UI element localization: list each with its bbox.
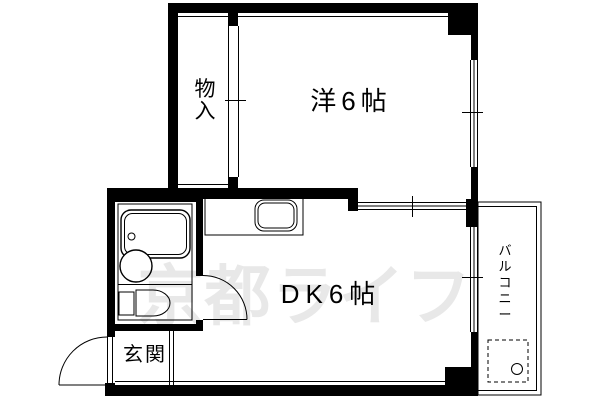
western-room-window [462, 60, 483, 167]
washing-machine-pan [488, 340, 528, 382]
wall-left-upper [168, 3, 178, 188]
balcony-label-char-4: ニ [498, 291, 511, 306]
room-partition-sliding-door [358, 196, 466, 217]
entrance-door-arc [59, 337, 107, 385]
balcony-label-char-3: コ [498, 275, 511, 290]
kitchen-sink [255, 200, 297, 231]
floorplan-drawing: 洋6帖 DK6帖 物 入 玄関 バ ル コ ニ ー 京都ライフ [0, 0, 600, 400]
floorplan: 洋6帖 DK6帖 物 入 玄関 バ ル コ ニ ー 京都ライフ [0, 0, 600, 400]
closet-label-char-1: 物 [195, 78, 216, 101]
entrance-door-opening [108, 337, 113, 383]
wall-right-mid [471, 167, 478, 203]
kitchen [205, 197, 303, 235]
wall-closet-stub-top [228, 13, 238, 26]
balcony-label-char-2: ル [498, 259, 511, 274]
washing-machine-drain-icon [512, 364, 523, 375]
wall-top [168, 3, 478, 13]
wall-right-upper [471, 35, 478, 60]
wall-step-block [348, 188, 358, 211]
kyoto-life-watermark: 京都ライフ [138, 259, 473, 333]
balcony-label-char-5: ー [498, 307, 511, 322]
closet-label-char-2: 入 [195, 100, 216, 123]
western-room-label: 洋6帖 [310, 86, 391, 116]
wall-top-right-block [448, 3, 478, 35]
entrance-label: 玄関 [123, 343, 167, 366]
wall-bottom [107, 385, 478, 396]
closet-sliding-door [225, 26, 246, 177]
wall-bottom-right-block [445, 367, 478, 396]
balcony-label-char-1: バ [498, 243, 511, 258]
wall-closet-stub-bottom [228, 177, 238, 188]
kitchen-sink-inner [258, 203, 294, 228]
wall-right-slider-block [466, 199, 478, 227]
